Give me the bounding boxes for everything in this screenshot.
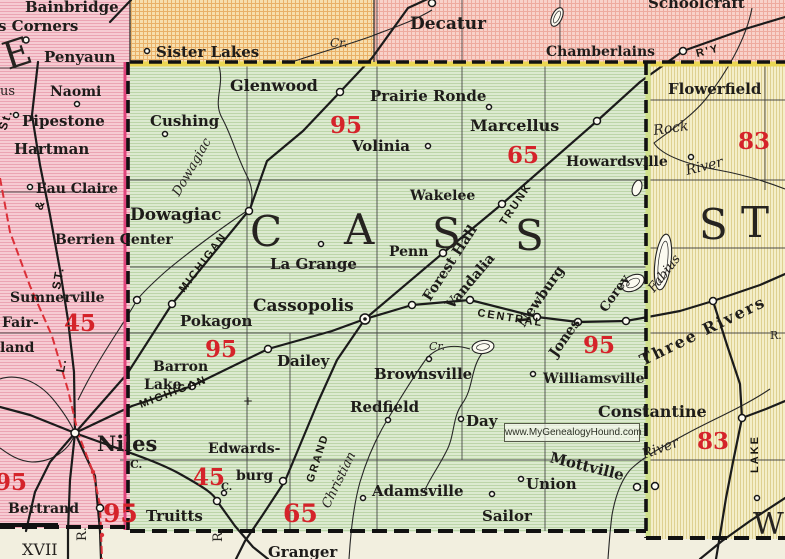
town-label-constantine: Constantine bbox=[598, 402, 707, 421]
station-marker bbox=[409, 302, 416, 309]
waterway-label-cr: Cr. bbox=[330, 36, 347, 50]
station-marker-wakelee bbox=[499, 201, 506, 208]
map-annotation-r: R. bbox=[211, 528, 226, 542]
station-marker-edwardsburg bbox=[280, 478, 287, 485]
railroad-label-lake: LAKE bbox=[749, 435, 761, 473]
town-label-bainbridge: Bainbridge bbox=[25, 0, 119, 16]
town-label-burg: burg bbox=[236, 468, 273, 484]
village-marker-eau-claire bbox=[28, 185, 33, 190]
route-number-83: 83 bbox=[697, 428, 729, 455]
town-label-naomi: Naomi bbox=[50, 84, 101, 100]
village-marker-cushing bbox=[163, 132, 168, 137]
town-label-barron: Barron bbox=[153, 359, 208, 375]
town-label-williamsville: Williamsville bbox=[542, 371, 645, 387]
town-label-dowagiac: Dowagiac bbox=[130, 205, 221, 225]
town-label-volinia: Volinia bbox=[351, 137, 410, 155]
town-label-edwards: Edwards- bbox=[208, 441, 281, 457]
station-marker-truitts bbox=[214, 498, 221, 505]
town-label-bertrand: Bertrand bbox=[8, 501, 79, 517]
waterway-label-cr: Cr. bbox=[429, 340, 445, 353]
county-letter-s: S bbox=[432, 209, 461, 258]
town-label-brownsville: Brownsville bbox=[374, 365, 472, 383]
town-label-land: land bbox=[0, 340, 35, 356]
village-marker-howardsville bbox=[689, 155, 694, 160]
route-number-83: 83 bbox=[738, 128, 770, 155]
town-label-c: C. bbox=[130, 458, 142, 471]
town-label-dailey: Dailey bbox=[277, 352, 331, 370]
town-label-marcellus: Marcellus bbox=[470, 116, 559, 135]
station-marker-dailey bbox=[265, 346, 272, 353]
village-marker-sailor bbox=[490, 492, 495, 497]
village-marker-union bbox=[519, 477, 524, 482]
town-label-eau-claire: Eau Claire bbox=[36, 181, 118, 197]
town-label-fair: Fair- bbox=[2, 315, 39, 331]
route-number-45: 45 bbox=[193, 464, 225, 491]
route-number-95: 95 bbox=[330, 112, 362, 139]
map-canvas: Bainbridges CornersPenyaunNaomiPipestone… bbox=[0, 0, 785, 559]
village-marker-adamsville bbox=[361, 496, 366, 501]
town-label-redfield: Redfield bbox=[350, 398, 420, 416]
interurban-dot bbox=[91, 470, 95, 474]
village-marker-sister-lakes bbox=[145, 49, 150, 54]
station-marker-sumnerville bbox=[134, 297, 141, 304]
station-marker-pokagon bbox=[169, 301, 176, 308]
station-marker-fabius bbox=[710, 298, 717, 305]
county-letter-a: A bbox=[343, 205, 375, 254]
town-label-sailor: Sailor bbox=[482, 507, 533, 525]
station-marker-constantine bbox=[739, 415, 746, 422]
town-label-cushing: Cushing bbox=[150, 112, 220, 130]
route-number-95: 95 bbox=[205, 336, 237, 363]
town-label-day: Day bbox=[466, 412, 499, 430]
town-label-wakelee: Wakelee bbox=[409, 188, 475, 204]
route-number-95: 95 bbox=[583, 332, 615, 359]
county-letter-w: W bbox=[753, 507, 784, 542]
village-marker-la-grange bbox=[319, 242, 324, 247]
route-number-65: 65 bbox=[283, 499, 318, 528]
station-marker bbox=[652, 483, 659, 490]
station-marker-marcellus bbox=[594, 118, 601, 125]
town-label-pokagon: Pokagon bbox=[180, 312, 252, 330]
town-label-sister-lakes: Sister Lakes bbox=[156, 43, 259, 61]
town-label-schoolcraft: Schoolcraft bbox=[648, 0, 745, 12]
map-annotation-us: us bbox=[0, 84, 15, 99]
station-marker-mottville bbox=[634, 484, 641, 491]
town-label-cassopolis: Cassopolis bbox=[253, 296, 354, 316]
map-annotation-r: R. bbox=[770, 329, 782, 342]
route-number-65: 65 bbox=[507, 142, 539, 169]
county-letter-s: S bbox=[699, 200, 728, 249]
map-annotation-r: R. bbox=[75, 527, 90, 541]
village-marker bbox=[755, 496, 760, 501]
county-letter-s: S bbox=[515, 211, 544, 260]
town-label-hartman: Hartman bbox=[14, 140, 89, 158]
station-marker-decatur bbox=[429, 0, 436, 7]
route-number-95: 95 bbox=[0, 469, 27, 496]
station-marker-glenwood bbox=[337, 89, 344, 96]
station-marker-niles-junction bbox=[71, 429, 79, 437]
station-marker-chamberlains bbox=[680, 48, 687, 55]
town-label-penn: Penn bbox=[389, 244, 428, 260]
railroad-label-l: L. bbox=[53, 357, 69, 374]
route-number-45: 45 bbox=[64, 310, 96, 337]
station-marker-corey bbox=[623, 318, 630, 325]
town-label-howardsville: Howardsville bbox=[566, 154, 668, 170]
town-label-decatur: Decatur bbox=[410, 14, 487, 34]
county-seat-dot bbox=[363, 317, 367, 321]
county-map-image: Bainbridges CornersPenyaunNaomiPipestone… bbox=[0, 0, 785, 559]
county-letter-c: C bbox=[250, 207, 282, 256]
town-label-berrien-center: Berrien Center bbox=[55, 232, 173, 248]
village-marker-williamsville bbox=[531, 372, 536, 377]
map-annotation-glyph: + bbox=[243, 394, 253, 408]
town-label-glenwood: Glenwood bbox=[230, 76, 318, 95]
town-label-chamberlains: Chamberlains bbox=[546, 44, 655, 60]
map-annotation-xvii: XVII bbox=[22, 540, 58, 559]
town-label-niles: Niles bbox=[97, 431, 157, 456]
route-number-95: 95 bbox=[103, 499, 138, 528]
town-label-penyaun: Penyaun bbox=[44, 48, 116, 66]
town-label-la-grange: La Grange bbox=[270, 255, 357, 273]
town-label-granger: Granger bbox=[268, 543, 338, 559]
town-label-sumnerville: Sumnerville bbox=[10, 290, 105, 306]
town-label-prairie-ronde: Prairie Ronde bbox=[370, 87, 486, 105]
town-label-flowerfield: Flowerfield bbox=[668, 80, 762, 98]
town-label-pipestone: Pipestone bbox=[22, 112, 105, 130]
village-marker-volinia bbox=[426, 144, 431, 149]
village-marker-prairie-ronde bbox=[487, 105, 492, 110]
town-label-adamsville: Adamsville bbox=[371, 482, 464, 500]
town-label-union: Union bbox=[526, 475, 577, 493]
town-label-truitts: Truitts bbox=[146, 507, 203, 525]
village-marker-brownsville bbox=[427, 357, 432, 362]
county-letter-t: T bbox=[741, 198, 769, 247]
watermark: www.MyGenealogyHound.com bbox=[504, 423, 640, 442]
interurban-dot bbox=[100, 533, 104, 537]
village-marker-redfield bbox=[386, 418, 391, 423]
village-marker-day bbox=[459, 417, 464, 422]
village-marker-naomi bbox=[75, 102, 80, 107]
